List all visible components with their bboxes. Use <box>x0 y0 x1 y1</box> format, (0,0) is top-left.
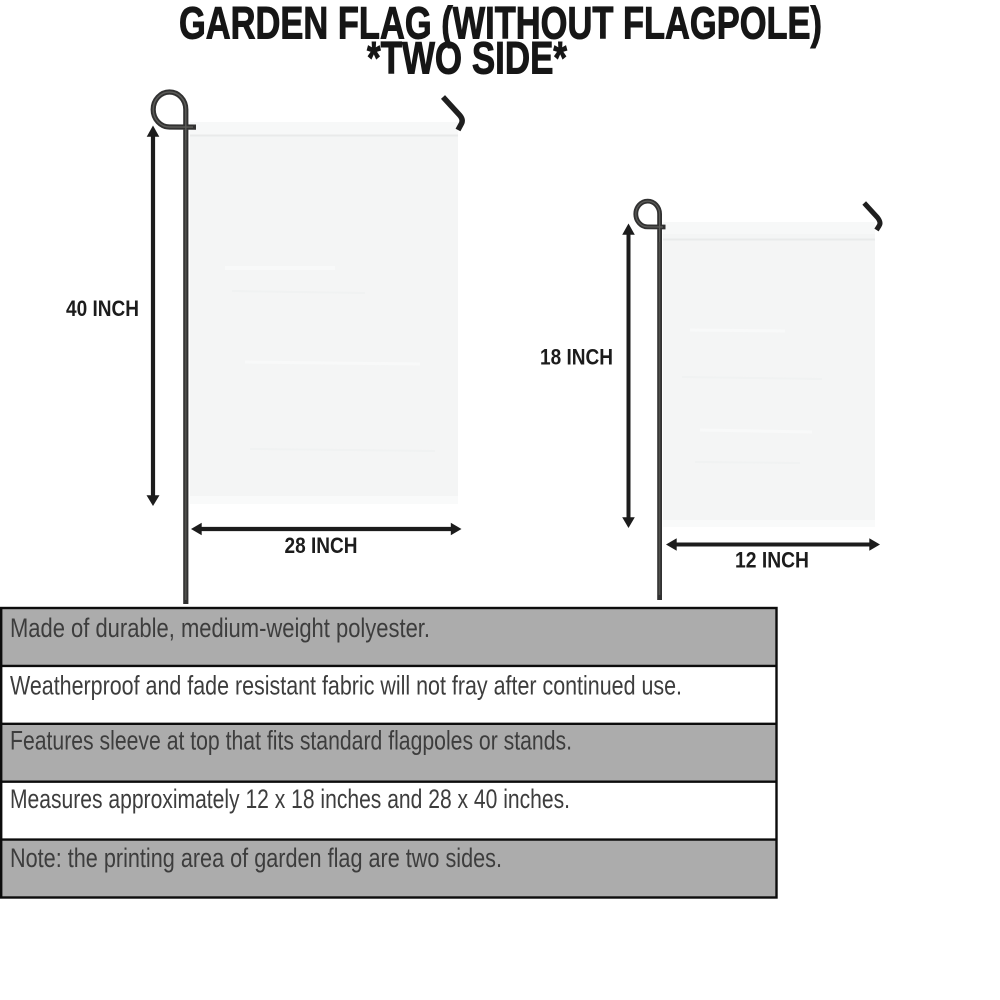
svg-text:Note: the printing area of gar: Note: the printing area of garden flag a… <box>10 843 502 873</box>
svg-text:Made of durable, medium-weight: Made of durable, medium-weight polyester… <box>10 613 430 643</box>
svg-text:28 INCH: 28 INCH <box>285 533 358 558</box>
svg-text:Features sleeve at top that fi: Features sleeve at top that fits standar… <box>10 726 572 756</box>
svg-text:Weatherproof and fade resistan: Weatherproof and fade resistant fabric w… <box>10 671 682 701</box>
svg-text:40 INCH: 40 INCH <box>66 296 139 321</box>
svg-text:Measures approximately 12 x 18: Measures approximately 12 x 18 inches an… <box>10 784 570 814</box>
svg-text:18 INCH: 18 INCH <box>540 345 613 370</box>
svg-text:12 INCH: 12 INCH <box>735 548 809 573</box>
svg-text:*TWO SIDE*: *TWO SIDE* <box>367 33 567 84</box>
